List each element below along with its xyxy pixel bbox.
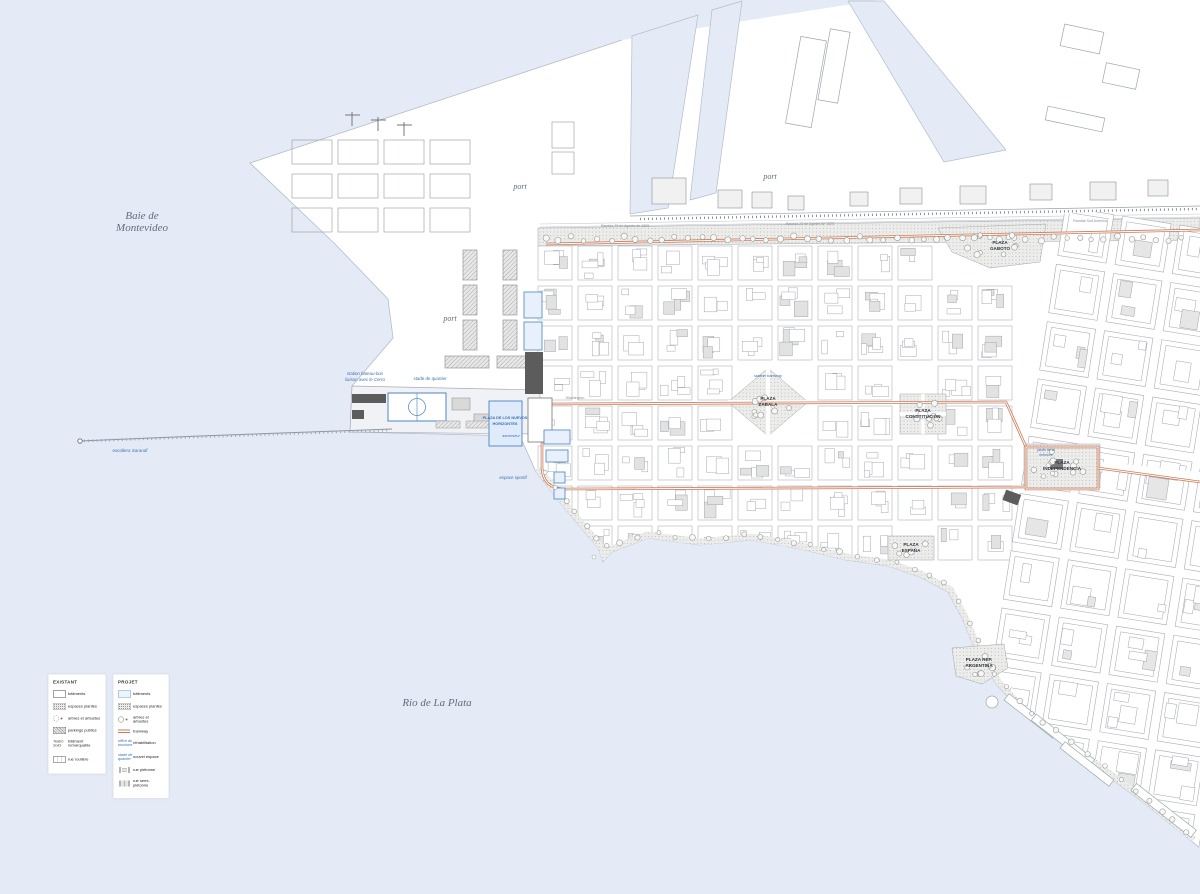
bay-label: Baie de [125,210,158,222]
bay-label: Montevideo [115,222,168,234]
plaza-gaboto-label: GABOTO [990,246,1011,251]
plaza-zabala-label: ZABALA [759,402,779,407]
legend-row-rehabilitation: office dutourisme réhabilitation [118,739,164,747]
tree-icon [118,717,124,723]
legend-existant-wrap: EXISTANT bâtiments espaces plantés arbre… [48,674,106,774]
plaza-constitucion-label: PLAZA [915,408,931,413]
plaza-horizontes-label: HORIZONTES [493,422,518,426]
legend-row-arbres-projet: arbres et arbustes [118,716,164,724]
tree-icon [53,716,59,722]
plaza-zabala-label: PLAZA [760,396,776,401]
plaza-espana-label: PLAZA [903,542,919,547]
road-section-icon [53,756,66,763]
breakwater-light [78,439,82,443]
quay-building [352,394,386,403]
plaza-horizontes-label: PLAZA DE LOS NUEVOS [483,416,528,420]
pedestrian-street-icon [118,767,131,774]
plaza-independencia-label: INDEPENDENCIA [1043,466,1082,471]
stade-label: stade de quartier [414,376,447,381]
ferry-station [352,410,364,419]
port-label: port [762,172,777,181]
legend-row-batiments-projet: bâtiments [118,691,164,698]
plaza-argentina-label: ARGENTINA [965,663,993,668]
legend-row-tramway: tramway [118,729,164,733]
legend-row-batiments: bâtiments [53,691,101,698]
plaza-constitucion-label: CONSTITUCIÓN [906,412,942,419]
legend-row-rue: rue routière [53,756,101,763]
port-label: port [512,182,527,191]
shrub-icon [126,719,128,721]
rehab-text-sample: office dutourisme [118,739,132,747]
planted-area-swatch-icon [53,703,66,710]
legend-row-arbres: arbres et arbustes [53,716,101,722]
legend-existant-title: EXISTANT [53,680,101,685]
shrub-icon [61,718,63,720]
station-tramway-label: station tramway [754,373,783,378]
plaza-argentina-label: PLAZA REP. [966,657,993,662]
rambla-sud-label: Rambla Sud América [1073,219,1107,223]
planted-area-swatch-icon [118,703,131,710]
new-building-swatch-icon [118,691,131,698]
plaza-independencia-label: PLAZA [1054,460,1070,465]
jardin-label: jardin de la [1036,448,1054,452]
legend-row-nouvel-espace: stade dequartier nouvel espace [118,753,164,761]
espace-sportif-label: espace sportif [499,475,527,480]
silo-building [525,352,543,394]
rambla-label: Rambla 25 de Agosto de 1825 [786,222,834,226]
legend-row-remarquable: Teatro Solís bâtiment remarquable [53,740,101,748]
ascenseur-label: ascenseur [502,434,520,438]
port-label: port [442,314,457,323]
legend-projet-title: PROJET [118,680,164,685]
site-plan-stage: Baie de Montevideo Rio de La Plata port … [0,0,1200,894]
tramway-line-icon [118,730,130,734]
legend-projet-wrap: PROJET bâtiments espaces plantés arbres … [113,674,169,798]
new-space-text-sample: stade dequartier [118,753,132,761]
building-swatch-icon [53,691,66,698]
legend-existant: EXISTANT bâtiments espaces plantés arbre… [48,674,106,774]
jardin-label: mémoire [1039,453,1053,457]
legend-row-parkings: parkings publics [53,727,101,734]
ferry-label: station bateau-bus [347,371,384,376]
legend-row-espaces: espaces plantés [53,703,101,710]
legend-row-pietonne: rue piétonne [118,767,164,774]
legend-projet: PROJET bâtiments espaces plantés arbres … [113,674,169,798]
plaza-gaboto-label: PLAZA [992,240,1008,245]
parking-swatch-icon [53,727,66,734]
breakwater-label: escollera Sarandí [112,448,148,453]
plaza-espana-label: ESPAÑA [902,547,921,553]
legend-row-semi-pietonne: rue semi-piétonne [118,779,164,787]
semi-pedestrian-street-icon [118,780,131,787]
river-label: Rio de La Plata [401,697,472,709]
ferry-label: liaison avec le Cerro [345,377,385,382]
landmark-text-sample: Teatro Solís [53,740,68,748]
rambla-label: Rambla 25 de Agosto de 1825 [601,224,649,228]
street-washington-label: Washington [566,396,585,400]
city-plan-map: Baie de Montevideo Rio de La Plata port … [0,0,1200,894]
legend-row-espaces-projet: espaces plantés [118,703,164,710]
